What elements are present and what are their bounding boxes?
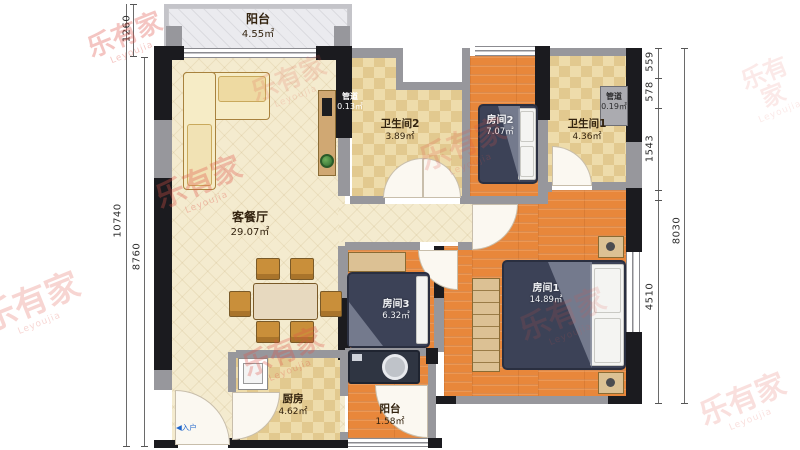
dimension-tick [655, 190, 662, 191]
room-label-kitchen: 厨房 4.62㎡ [248, 393, 338, 418]
watermark-text: 乐有家 [694, 367, 791, 433]
duct-area: 0.13㎡ [337, 102, 363, 111]
wall-segment [236, 350, 345, 358]
watermark: 乐有家 Leyoujia [733, 51, 800, 127]
room-area: 4.55㎡ [208, 28, 308, 41]
duct-label-1: 管道 0.19㎡ [592, 92, 636, 112]
wall-segment [626, 142, 642, 188]
dining-chair [256, 258, 280, 280]
room-name: 客餐厅 [200, 210, 300, 226]
wall-segment [166, 26, 182, 46]
wall-segment [462, 48, 470, 196]
room-area: 7.07㎡ [472, 127, 528, 138]
dim-right-4510: 4510 [645, 275, 656, 319]
dimension-tick [130, 56, 137, 57]
wall-segment [462, 196, 472, 204]
dim-right-1543: 1543 [645, 127, 656, 171]
room-area: 1.58㎡ [345, 417, 435, 429]
watermark-subtext: Leyoujia [752, 98, 800, 128]
room-label-bathroom2: 卫生间2 3.89㎡ [355, 118, 445, 143]
room-label-living: 客餐厅 29.07㎡ [200, 210, 300, 239]
lamp [606, 242, 615, 251]
dimension-tick [655, 108, 662, 109]
sofa-cushion [218, 76, 266, 102]
wall-segment [154, 46, 172, 120]
wall-segment [434, 298, 444, 352]
wall-segment [626, 332, 642, 404]
dining-chair [320, 291, 342, 317]
duct-name: 管道 [328, 92, 372, 102]
dimension-line [658, 48, 659, 404]
watermark: 乐有家 Leyoujia [696, 370, 795, 442]
wall-segment [154, 178, 172, 370]
wall-segment [592, 182, 626, 190]
room-name: 房间1 [514, 282, 578, 295]
wall-segment [228, 352, 236, 392]
room-area: 4.36㎡ [542, 132, 632, 144]
wall-segment [338, 138, 350, 196]
dimension-tick [123, 446, 130, 447]
watermark: 乐有家 Leyoujia [0, 268, 89, 348]
wall-segment [334, 26, 350, 46]
dining-table [253, 283, 318, 320]
dining-chair [256, 321, 280, 343]
kitchen-sink-basin [243, 363, 263, 384]
dimension-line [133, 4, 134, 57]
wall-segment [232, 440, 348, 448]
room-name: 阳台 [208, 12, 308, 28]
wall-segment [626, 188, 642, 252]
wall-segment [350, 196, 385, 204]
corridor-floor [338, 204, 478, 242]
dining-chair [290, 258, 314, 280]
dimension-tick [141, 57, 148, 58]
lamp [606, 378, 615, 387]
watermark-text: 乐有家 [737, 51, 792, 113]
dim-left-balcony: 1260 [122, 7, 133, 51]
room-name: 厨房 [248, 393, 338, 407]
room-name: 阳台 [345, 403, 435, 417]
sofa-cushion [187, 124, 212, 186]
dim-right-total: 8030 [672, 209, 683, 253]
watermark-subtext: Leyoujia [708, 399, 795, 441]
dim-left-total: 10740 [113, 199, 124, 243]
room-label-bedroom3: 房间3 6.32㎡ [368, 298, 424, 322]
watermark-subtext: Leyoujia [0, 301, 89, 348]
room-label-bathroom1: 卫生间1 4.36㎡ [542, 118, 632, 143]
wall-segment [428, 438, 442, 448]
dimension-line [126, 4, 127, 447]
room-label-bedroom1: 房间1 14.89㎡ [514, 282, 578, 306]
wall-segment [460, 196, 540, 204]
room-area: 6.32㎡ [368, 311, 424, 322]
pillow [594, 318, 621, 363]
window [348, 438, 428, 447]
pillow [520, 146, 534, 177]
room-name: 房间2 [472, 114, 528, 127]
dimension-tick [130, 4, 137, 5]
room-area: 3.89㎡ [355, 132, 445, 144]
dimension-tick [681, 403, 688, 404]
wall-segment [340, 356, 348, 396]
dimension-tick [655, 48, 662, 49]
balcony-rail [164, 4, 352, 8]
watermark-text: 乐有家 [0, 265, 86, 340]
room-label-balcony-bottom: 阳台 1.58㎡ [345, 403, 435, 428]
duct-name: 管道 [592, 92, 636, 102]
duct-area: 0.19㎡ [601, 102, 627, 111]
washing-machine-panel [352, 354, 362, 361]
dimension-line [144, 57, 145, 447]
window [626, 252, 640, 332]
room-name: 房间3 [368, 298, 424, 311]
room-label-balcony-top: 阳台 4.55㎡ [208, 12, 308, 41]
washing-machine-drum [382, 354, 408, 380]
dimension-line [684, 48, 685, 404]
dimension-tick [655, 403, 662, 404]
wall-segment [540, 182, 552, 192]
room-area: 4.62㎡ [248, 407, 338, 419]
dim-left-inner: 8760 [132, 235, 143, 279]
wall-segment [458, 242, 472, 250]
wall-segment [436, 396, 456, 404]
dimension-tick [655, 78, 662, 79]
dimension-tick [141, 446, 148, 447]
room-name: 卫生间2 [355, 118, 445, 132]
dimension-tick [655, 200, 662, 201]
wall-segment [154, 120, 172, 178]
room-label-bedroom2: 房间2 7.07㎡ [472, 114, 528, 138]
window [184, 48, 316, 58]
wall-segment [548, 48, 626, 56]
duct-label-2: 管道 0.13㎡ [328, 92, 372, 112]
wardrobe [348, 252, 406, 272]
wall-segment [426, 348, 438, 364]
entry-marker: ◀入户 [176, 422, 197, 433]
dining-chair [229, 291, 251, 317]
plant [320, 154, 334, 168]
dimension-tick [681, 48, 688, 49]
wall-segment [154, 370, 172, 390]
dim-right-578: 578 [645, 70, 656, 114]
room-name: 卫生间1 [542, 118, 632, 132]
floor-plan: 阳台 4.55㎡ 客餐厅 29.07㎡ 卫生间2 3.89㎡ 卫生间1 4.36… [0, 0, 800, 450]
entry-label: 入户 [182, 423, 197, 432]
room-area: 14.89㎡ [514, 295, 578, 306]
wardrobe [472, 278, 500, 372]
window [475, 46, 535, 56]
ac-recess [403, 40, 462, 82]
pillow [594, 268, 621, 313]
wall-segment [608, 396, 642, 404]
dining-chair [290, 321, 314, 343]
wall-segment [396, 82, 470, 90]
room-area: 29.07㎡ [200, 226, 300, 239]
wall-segment [345, 242, 420, 250]
